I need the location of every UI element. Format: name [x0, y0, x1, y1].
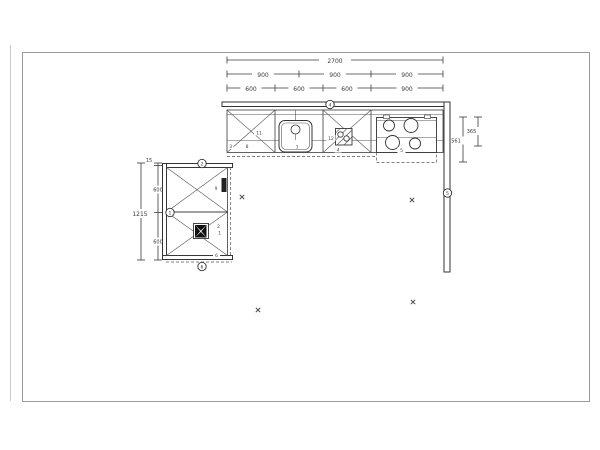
x-mark — [410, 198, 414, 202]
fan-icon — [194, 224, 209, 239]
label-item-3: 3 — [229, 144, 232, 150]
label-item-4: 4 — [337, 147, 340, 153]
dim-600-3: 600 — [341, 86, 353, 93]
dim-900-4: 900 — [401, 86, 413, 93]
dim-left-15: 15 — [146, 158, 152, 164]
cooktop-range — [377, 115, 437, 163]
marker-2: 2 — [198, 159, 206, 167]
sink-tap — [291, 125, 300, 134]
dim-left-total: 1215 — [132, 211, 147, 218]
label-item-8: 8 — [246, 144, 249, 150]
marker-5: 5 — [443, 189, 451, 197]
dim-right-561: 561 — [451, 139, 461, 145]
dimension-top-row-600: 600 600 600 900 — [227, 84, 443, 94]
marker-6: 6 — [198, 262, 206, 270]
burner-icon — [384, 120, 395, 131]
dim-600-1: 600 — [245, 86, 257, 93]
dim-900-2: 900 — [329, 72, 341, 79]
x-mark — [256, 308, 260, 312]
marker-1: 1 — [166, 208, 174, 216]
label-item-11: 11 — [256, 131, 262, 137]
svg-text:2: 2 — [201, 161, 204, 167]
label-item-9: 9 — [215, 186, 218, 192]
label-item-2: 2 — [217, 224, 220, 230]
drawing-canvas: 2700 900 900 900 600 600 600 900 1 — [0, 0, 600, 450]
dim-top-total: 2700 — [327, 58, 342, 65]
burner-icon — [404, 119, 418, 133]
dim-left-600b: 600 — [153, 240, 163, 246]
dimension-top-total: 2700 — [227, 56, 443, 66]
x-reference-marks — [240, 195, 415, 312]
burner-icon — [410, 138, 421, 149]
label-item-1: 1 — [218, 231, 221, 237]
dim-900-1: 900 — [257, 72, 269, 79]
dim-left-600a: 600 — [153, 188, 163, 194]
dim-right-365: 365 — [467, 129, 477, 135]
svg-text:5: 5 — [446, 191, 449, 197]
label-item-6: 6 — [215, 253, 218, 259]
svg-text:4: 4 — [329, 102, 332, 108]
base-cabinet-x-left — [227, 110, 275, 153]
label-item-12: 12 — [328, 136, 334, 142]
dim-900-3: 900 — [401, 72, 413, 79]
label-item-5: 5 — [400, 148, 403, 154]
burner-icon — [386, 136, 400, 150]
label-item-7: 7 — [296, 145, 299, 151]
sheet-frame — [11, 45, 590, 402]
svg-text:1: 1 — [169, 210, 172, 216]
dimension-top-row-900: 900 900 900 — [227, 70, 443, 80]
left-wing-bottom-wall — [163, 256, 233, 260]
top-wall — [222, 102, 450, 107]
marker-4: 4 — [326, 100, 334, 108]
svg-text:6: 6 — [201, 264, 204, 270]
dimension-right: 561 365 — [448, 117, 482, 162]
x-mark — [240, 195, 244, 199]
range-hidden-edge-dashed — [377, 153, 437, 163]
left-wing-cabinets — [166, 167, 232, 262]
right-wall — [444, 102, 450, 272]
kitchen-floor-plan: 2700 900 900 900 600 600 600 900 1 — [0, 0, 600, 450]
built-in-appliance — [222, 178, 227, 192]
hob-unit — [336, 129, 353, 146]
dim-600-2: 600 — [293, 86, 305, 93]
x-mark — [411, 300, 415, 304]
